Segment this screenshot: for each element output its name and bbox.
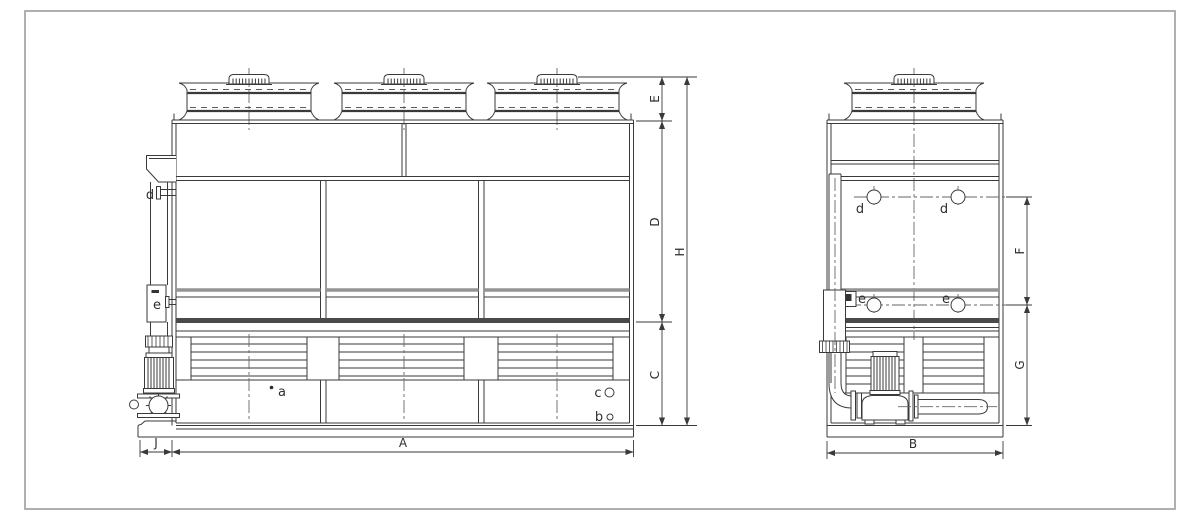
port-a-marker	[270, 386, 274, 390]
port-e-right-marker	[951, 298, 965, 312]
dim-label-E: E	[648, 95, 662, 103]
cooling-tower-technical-drawing: a c b d	[0, 0, 1200, 520]
port-label-e-front: e	[153, 298, 161, 313]
port-label-a: a	[278, 385, 286, 400]
port-label-d-right: d	[940, 202, 948, 217]
port-d-left-marker	[867, 190, 881, 204]
port-d-right-marker	[951, 190, 965, 204]
drawing-canvas: a c b d	[0, 0, 1200, 520]
dim-label-D: D	[648, 217, 662, 226]
port-e-left-marker	[867, 298, 881, 312]
dim-label-B: B	[909, 437, 917, 451]
dim-label-A: A	[399, 436, 408, 450]
dim-label-H: H	[673, 247, 687, 256]
port-label-c: c	[594, 386, 601, 401]
dim-label-J: J	[153, 436, 158, 450]
port-label-d-left: d	[856, 202, 864, 217]
port-label-d-front: d	[146, 188, 154, 203]
dim-label-C: C	[648, 371, 662, 379]
port-label-b: b	[595, 410, 603, 425]
dim-label-F: F	[1013, 247, 1027, 254]
dim-label-G: G	[1013, 360, 1027, 369]
port-label-e-right: e	[942, 292, 950, 307]
port-label-e-left: e	[858, 292, 866, 307]
